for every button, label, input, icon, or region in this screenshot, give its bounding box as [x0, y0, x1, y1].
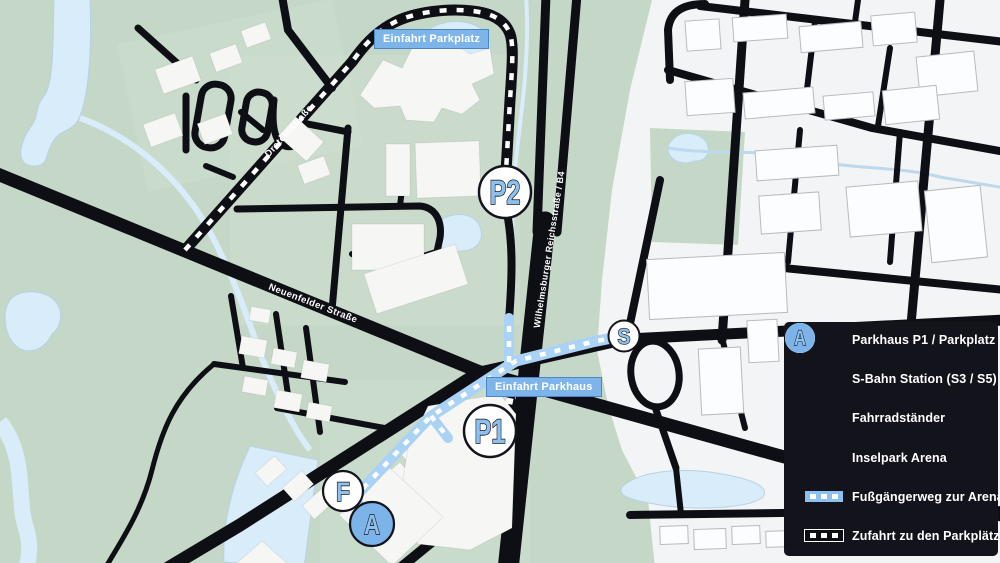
map-legend: P Parkhaus P1 / Parkplatz P2 S S-Bahn St…	[784, 322, 998, 556]
badge-einfahrt-parkplatz: Einfahrt Parkplatz	[374, 29, 489, 49]
pedestrian-path-icon	[796, 491, 852, 502]
legend-row-fahrrad: F Fahrradständer	[796, 411, 988, 425]
badge-einfahrt-parkhaus: Einfahrt Parkhaus	[486, 377, 602, 397]
legend-row-zufahrt: Zufahrt zu den Parkplätzen	[796, 529, 988, 543]
legend-row-parkhaus: P Parkhaus P1 / Parkplatz P2	[796, 333, 988, 347]
svg-text:A: A	[794, 327, 806, 350]
marker-p2: P2	[479, 166, 531, 218]
marker-s: S	[609, 321, 640, 352]
marker-p1: P1	[464, 405, 516, 457]
pond-mall-south	[438, 214, 481, 252]
legend-label: Inselpark Arena	[852, 451, 947, 465]
legend-row-fussgaengerweg: Fußgängerweg zur Arena	[796, 490, 988, 504]
legend-label: Fußgängerweg zur Arena	[852, 490, 1000, 504]
marker-a: A	[350, 502, 394, 546]
legend-label: S-Bahn Station (S3 / S5)	[852, 372, 997, 386]
legend-row-arena: A Inselpark Arena	[796, 451, 988, 465]
marker-f-label: F	[336, 477, 350, 507]
legend-label: Zufahrt zu den Parkplätzen	[852, 529, 1000, 543]
marker-a-label: A	[364, 509, 380, 540]
marker-p1-label: P1	[475, 413, 506, 451]
marker-p2-label: P2	[490, 174, 521, 212]
inselpark-arena-parking-map: Dratelnstraße Neuenfelder Straße Wilhelm…	[0, 0, 1000, 563]
access-route-icon	[796, 530, 852, 541]
marker-f: F	[323, 471, 363, 511]
legend-row-sbahn: S S-Bahn Station (S3 / S5)	[796, 372, 988, 386]
marker-s-label: S	[618, 324, 631, 349]
legend-label: Parkhaus P1 / Parkplatz P2	[852, 333, 1000, 347]
legend-label: Fahrradständer	[852, 411, 945, 425]
